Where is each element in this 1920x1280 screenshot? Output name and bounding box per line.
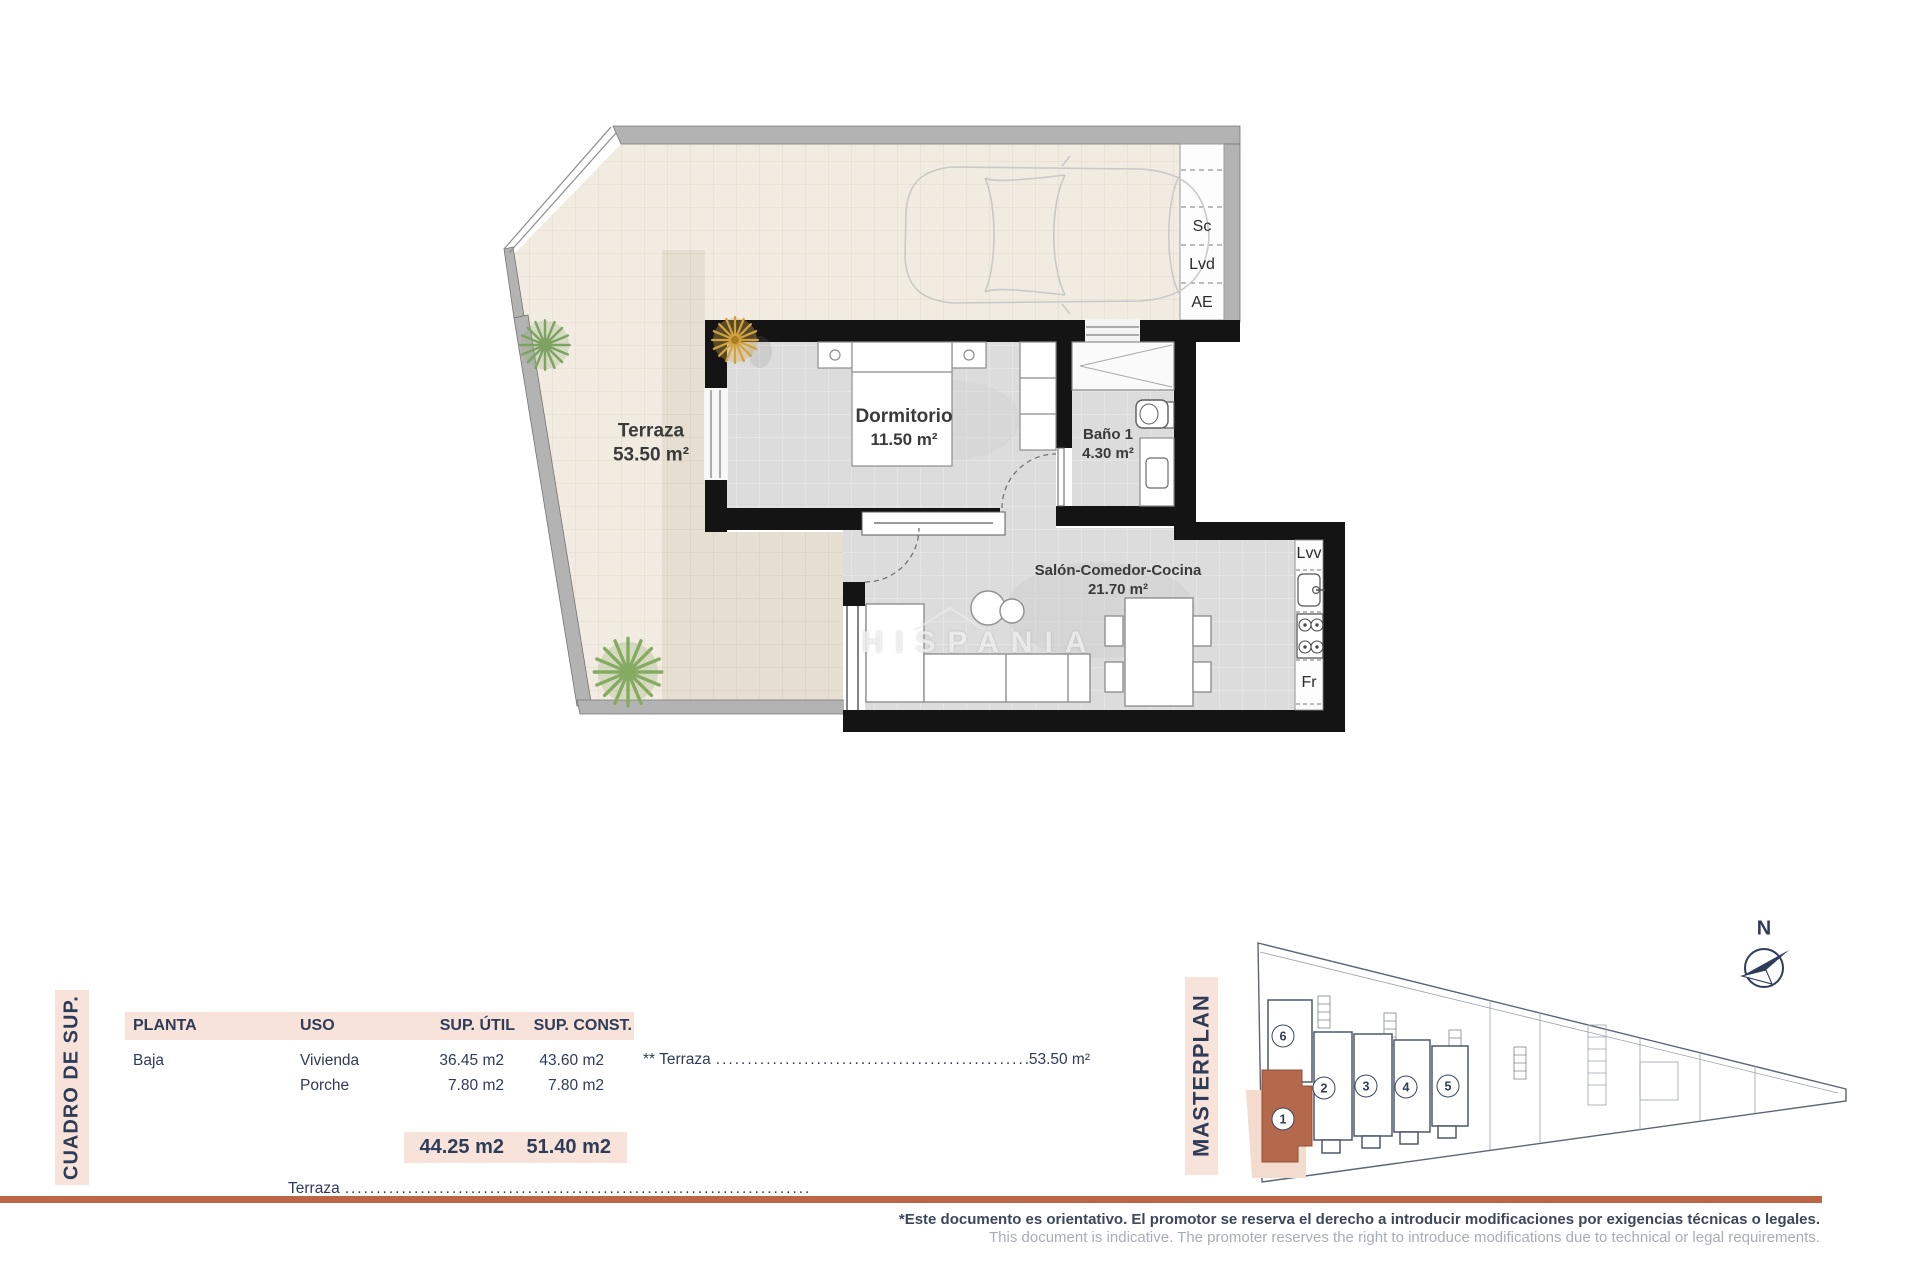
room-name: Salón-Comedor-Cocina (1035, 561, 1202, 580)
cell-uso: Porche (300, 1077, 423, 1095)
chair (1105, 616, 1123, 646)
lvv-label: Lvv (1297, 545, 1322, 563)
chair (1193, 616, 1211, 646)
masterplan-sidebar-title: MASTERPLAN (1185, 977, 1218, 1175)
floorplan-sheet: { "colors": { "accent_terracotta": "#bb6… (0, 0, 1920, 1280)
cell-util: 36.45 m2 (423, 1052, 504, 1070)
cell-uso: Vivienda (300, 1052, 423, 1070)
nightstand-right (952, 342, 986, 368)
table-row: Baja Vivienda 36.45 m2 43.60 m2 (125, 1048, 634, 1073)
room-area: 4.30 m² (1082, 444, 1134, 463)
disclaimer-en: This document is indicative. The promote… (899, 1229, 1820, 1246)
header-const: SUP. CONST. (515, 1017, 634, 1035)
north-label: N (1757, 918, 1771, 941)
unit-badge-3: 3 (1355, 1075, 1378, 1098)
sofa-seat (924, 654, 1090, 702)
unit-badge-1: 1 (1272, 1108, 1295, 1131)
wardrobe (1020, 342, 1056, 450)
note-dots: ........................................… (711, 1051, 1029, 1069)
unit-badge-2: 2 (1313, 1077, 1336, 1100)
ae-label: AE (1191, 294, 1212, 312)
chair (1105, 662, 1123, 692)
living-label: Salón-Comedor-Cocina 21.70 m² (1035, 561, 1202, 599)
brand-watermark: HISPANIA (861, 626, 1098, 660)
chair (1193, 662, 1211, 692)
total-const: 51.40 m2 (504, 1136, 619, 1159)
sc-label: Sc (1193, 218, 1212, 236)
cell-const: 43.60 m2 (504, 1052, 604, 1070)
room-name: Dormitorio (855, 405, 952, 429)
compass-icon (1742, 949, 1789, 987)
unit-badge-6: 6 (1272, 1025, 1295, 1048)
header-util: SUP. ÚTIL (423, 1017, 515, 1035)
disclaimer-es: *Este documento es orientativo. El promo… (899, 1211, 1820, 1228)
dining-table (1125, 598, 1193, 706)
fr-label: Fr (1301, 674, 1316, 692)
coffee-table-small (1000, 599, 1024, 623)
header-planta: PLANTA (125, 1017, 300, 1035)
area-table-header: PLANTA USO SUP. ÚTIL SUP. CONST. (125, 1012, 634, 1040)
room-name: Baño 1 (1082, 425, 1134, 444)
room-area: 21.70 m² (1035, 580, 1202, 599)
note-value: 53.50 m² (1029, 1051, 1090, 1069)
table-row: Porche 7.80 m2 7.80 m2 (125, 1073, 634, 1098)
bathroom-label: Baño 1 4.30 m² (1082, 425, 1134, 463)
shower (1072, 342, 1174, 390)
unit-badge-5: 5 (1437, 1075, 1460, 1098)
room-area: 11.50 m² (855, 429, 952, 451)
cell-util: 7.80 m2 (423, 1077, 504, 1095)
unit-badge-4: 4 (1395, 1076, 1418, 1099)
terrace-label: Terraza 53.50 m² (613, 420, 689, 469)
cell-const: 7.80 m2 (504, 1077, 604, 1095)
room-name: Terraza (613, 420, 689, 444)
note-label: ** Terraza (643, 1051, 711, 1069)
cell-planta: Baja (125, 1052, 300, 1070)
terraza-note: ** Terraza .............................… (643, 1051, 1090, 1069)
room-area: 53.50 m² (613, 444, 689, 468)
total-util: 44.25 m2 (404, 1136, 504, 1159)
plant-icon (594, 638, 662, 706)
nightstand-left (818, 342, 852, 368)
area-table-sidebar-title: CUADRO DE SUP. (55, 990, 89, 1185)
bedroom-label: Dormitorio 11.50 m² (855, 405, 952, 451)
header-uso: USO (300, 1017, 423, 1035)
area-table-body: Baja Vivienda 36.45 m2 43.60 m2 Porche 7… (125, 1048, 634, 1098)
plant-icon (520, 320, 569, 369)
area-table-totals: 44.25 m2 51.40 m2 (404, 1132, 627, 1163)
accent-divider (0, 1196, 1822, 1203)
disclaimer: *Este documento es orientativo. El promo… (899, 1211, 1820, 1246)
lvd-label: Lvd (1189, 256, 1215, 274)
